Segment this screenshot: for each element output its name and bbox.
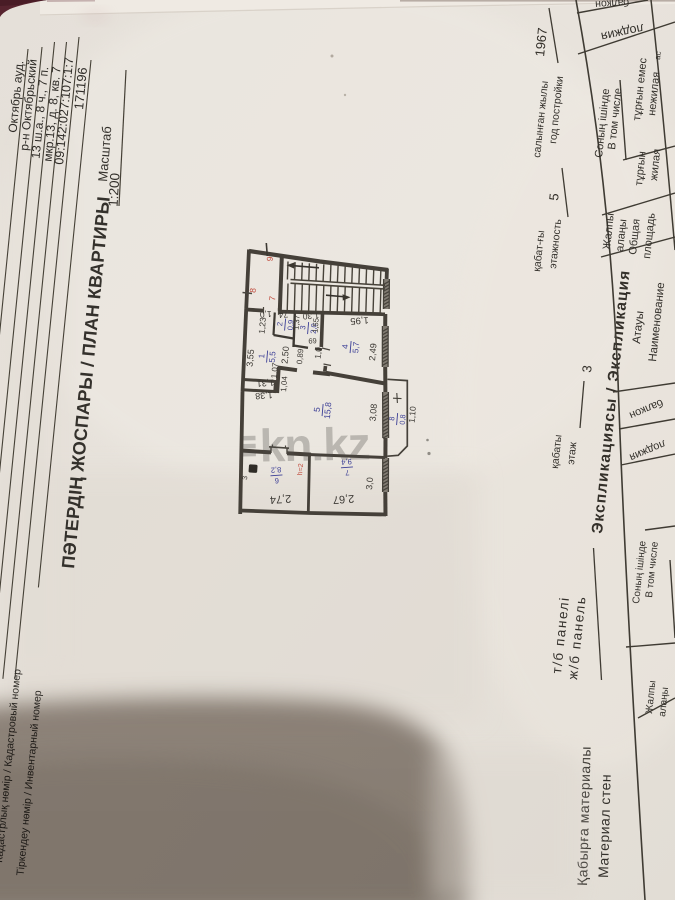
svg-text:2,67: 2,67 <box>332 492 354 505</box>
svg-text:2: 2 <box>275 322 284 327</box>
svg-text:15,8: 15,8 <box>322 402 333 420</box>
svg-text:1,23: 1,23 <box>257 317 268 335</box>
svg-text:3,0: 3,0 <box>364 477 375 490</box>
svg-text:5,5: 5,5 <box>268 351 278 364</box>
svg-text:0,89: 0,89 <box>295 348 305 365</box>
svg-text:1,95: 1,95 <box>350 314 369 326</box>
svg-text:2,49: 2,49 <box>367 343 378 361</box>
svg-text:5,7: 5,7 <box>351 341 361 354</box>
svg-text:2,50: 2,50 <box>280 346 291 364</box>
svg-text:1,0: 1,0 <box>313 346 324 359</box>
svg-text:2,74: 2,74 <box>269 492 291 505</box>
svg-text:1,04: 1,04 <box>279 375 289 392</box>
svg-text:ас: ас <box>653 51 663 60</box>
svg-text:1,10: 1,10 <box>407 406 418 424</box>
svg-text:1,55: 1,55 <box>311 318 321 334</box>
svg-text:3,55: 3,55 <box>245 349 256 367</box>
svg-text:Материал стен: Материал стен <box>595 774 614 878</box>
svg-text:8: 8 <box>387 416 396 421</box>
svg-text:69: 69 <box>308 336 317 346</box>
svg-text:этаж: этаж <box>565 441 579 465</box>
svg-text:kn.kz: kn.kz <box>259 417 370 471</box>
svg-text:1,31: 1,31 <box>256 378 274 389</box>
svg-text:74: 74 <box>278 310 288 321</box>
svg-text:3,08: 3,08 <box>368 403 379 421</box>
svg-text:балкон: балкон <box>595 0 630 10</box>
svg-text:1,38: 1,38 <box>255 390 273 401</box>
svg-text:6: 6 <box>274 476 279 485</box>
svg-text:1,07: 1,07 <box>270 362 280 379</box>
svg-text:3: 3 <box>242 476 249 481</box>
svg-text:1:200: 1:200 <box>106 173 123 208</box>
svg-text:1967: 1967 <box>532 27 550 57</box>
svg-text:3: 3 <box>298 325 307 330</box>
